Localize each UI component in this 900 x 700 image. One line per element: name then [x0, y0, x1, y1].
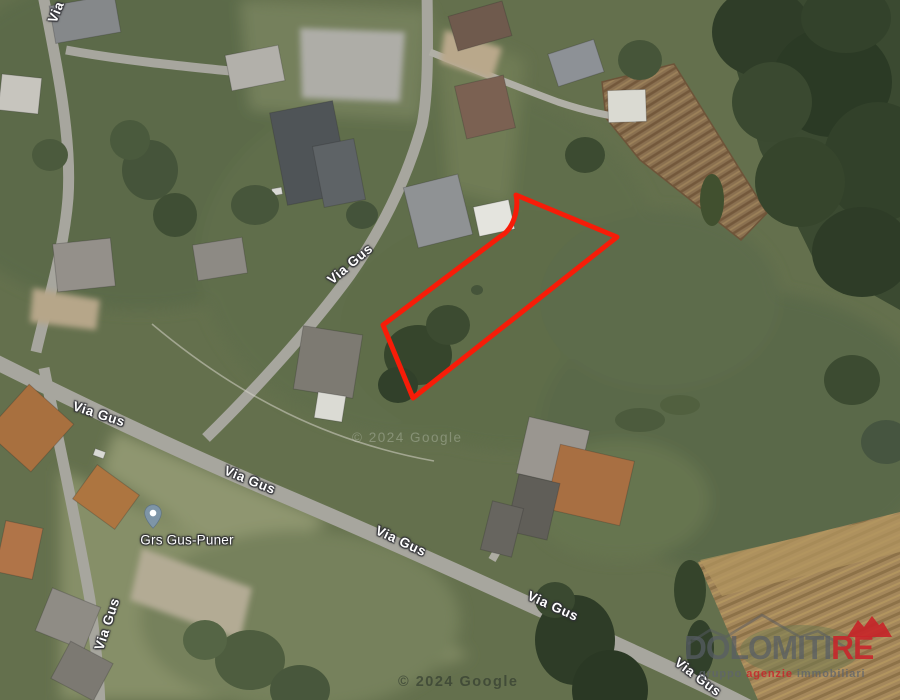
- google-copyright-bottom: © 2024 Google: [398, 674, 518, 690]
- satellite-imagery: [0, 0, 900, 700]
- map-viewport[interactable]: Via GusVia GusVia GusVia GusVia GusVia G…: [0, 0, 900, 700]
- place-marker-label: Grs Gus-Puner: [140, 533, 233, 548]
- google-copyright-center: © 2024 Google: [352, 430, 463, 445]
- map-pin-icon[interactable]: [144, 504, 162, 534]
